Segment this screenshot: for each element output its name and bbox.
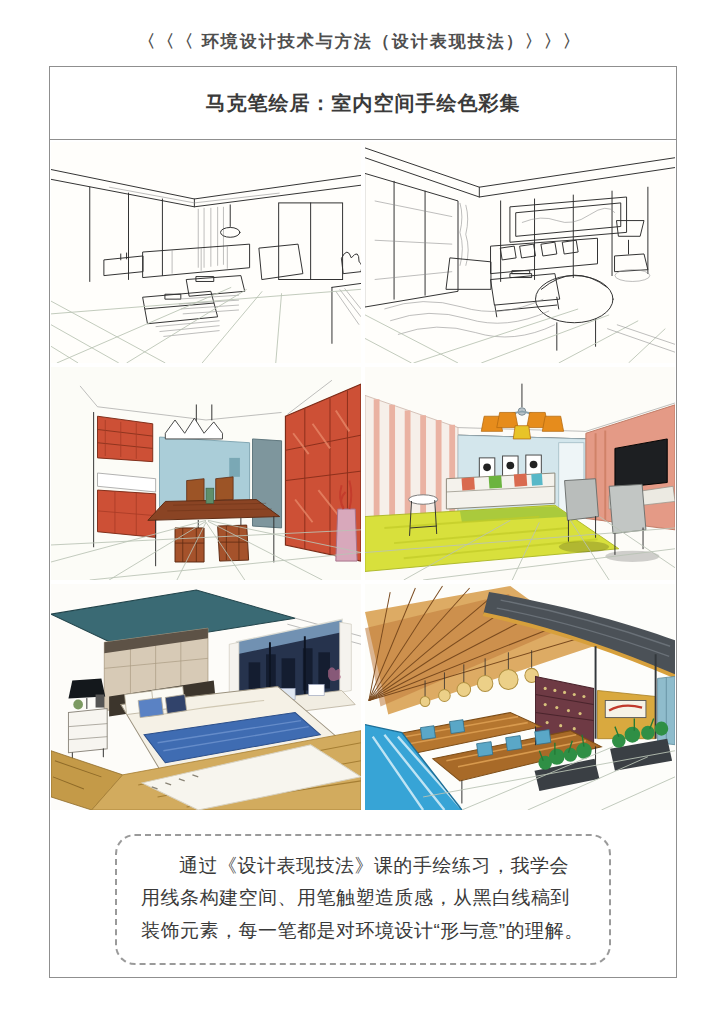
image-gallery <box>50 140 676 808</box>
summary-text: 通过《设计表现技法》课的手绘练习，我学会用线条构建空间、用笔触塑造质感，从黑白线… <box>141 850 585 947</box>
page-title: 马克笔绘居：室内空间手绘色彩集 <box>206 90 521 117</box>
line-sketch-illustration-2 <box>365 142 675 363</box>
title-box: 马克笔绘居：室内空间手绘色彩集 <box>50 67 676 140</box>
gallery-panel-bw-sketch-1 <box>51 142 361 363</box>
page-header: 〈〈〈 环境设计技术与方法（设计表现技法）〉〉〉 <box>0 30 720 53</box>
summary-section: 通过《设计表现技法》课的手绘练习，我学会用线条构建空间、用笔触塑造质感，从黑白线… <box>50 808 676 977</box>
gallery-panel-bw-sketch-2 <box>365 142 675 363</box>
page-header-text: 〈〈〈 环境设计技术与方法（设计表现技法）〉〉〉 <box>138 32 582 51</box>
marker-illustration-bedroom <box>51 584 361 810</box>
marker-illustration-dining <box>51 367 361 580</box>
gallery-panel-marker-livingroom <box>365 367 675 580</box>
gallery-panel-marker-restaurant <box>365 584 675 810</box>
marker-illustration-livingroom <box>365 367 675 580</box>
gallery-panel-marker-bedroom <box>51 584 361 810</box>
summary-box: 通过《设计表现技法》课的手绘练习，我学会用线条构建空间、用笔触塑造质感，从黑白线… <box>115 834 611 965</box>
marker-illustration-restaurant <box>365 584 675 810</box>
gallery-panel-marker-dining <box>51 367 361 580</box>
poster-page: { "header": { "text": "〈〈〈 环境设计技术与方法（设计表… <box>0 0 720 1018</box>
content-frame: 马克笔绘居：室内空间手绘色彩集 <box>49 66 677 978</box>
line-sketch-illustration-1 <box>51 142 361 363</box>
